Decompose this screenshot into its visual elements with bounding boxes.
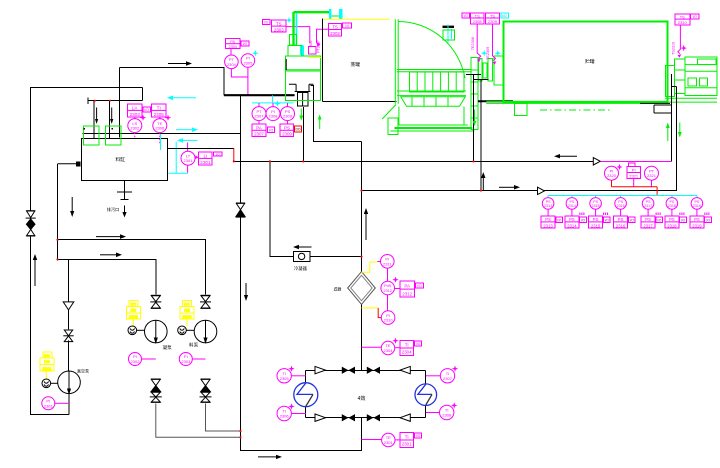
svg-text:LI: LI [203,153,207,158]
svg-text:2307: 2307 [255,114,265,119]
svg-text:TS: TS [680,15,685,20]
svg-text:2312: 2312 [402,291,412,296]
svg-text:HS: HS [184,308,190,313]
svg-text:TS: TS [490,13,495,18]
svg-text:2313: 2313 [544,204,552,208]
svg-text:2321: 2321 [647,173,657,178]
svg-text:真空泵: 真空泵 [77,367,89,373]
svg-text:2311: 2311 [383,261,392,266]
svg-text:2303: 2303 [130,112,141,117]
svg-text:I/O: I/O [630,218,635,222]
svg-text:2319: 2319 [693,204,701,208]
svg-text:TI: TI [405,343,409,348]
svg-text:I/O: I/O [557,218,562,222]
svg-text:PA: PA [230,40,235,44]
svg-text:2310: 2310 [678,20,688,25]
svg-text:2316: 2316 [617,204,625,208]
svg-text:I/O: I/O [416,342,421,346]
svg-text:蒸罐: 蒸罐 [351,61,361,68]
svg-text:2309: 2309 [488,19,498,24]
svg-text:2310: 2310 [384,318,394,323]
svg-text:2309: 2309 [283,114,293,119]
svg-text:2318: 2318 [667,223,677,228]
svg-text:2314: 2314 [567,223,577,228]
svg-text:I/O: I/O [693,15,698,19]
svg-text:2306: 2306 [155,126,165,131]
svg-text:PS: PS [569,217,575,222]
svg-text:DO: DO [44,354,50,358]
svg-text:2301: 2301 [402,442,412,447]
svg-text:I/O: I/O [345,24,350,28]
svg-text:2308: 2308 [442,413,452,418]
svg-text:I/O: I/O [417,284,422,288]
svg-text:2303: 2303 [274,27,284,32]
svg-text:TS: TS [332,25,338,30]
svg-text:2301: 2301 [200,160,211,165]
svg-text:2316: 2316 [616,223,626,228]
svg-text:4效: 4效 [358,394,367,402]
svg-text:2301: 2301 [44,403,54,408]
svg-text:2304: 2304 [402,350,412,355]
svg-text:2302: 2302 [130,126,140,131]
svg-text:2315: 2315 [591,223,601,228]
svg-text:2301: 2301 [384,440,394,445]
svg-text:2304: 2304 [228,45,236,49]
svg-text:料缸: 料缸 [116,156,126,163]
svg-text:2305: 2305 [154,112,165,117]
svg-text:I/O: I/O [581,218,586,222]
svg-text:TE2308: TE2308 [471,37,475,50]
svg-text:HS: HS [131,308,137,313]
svg-text:I/O: I/O [502,14,507,18]
svg-text:I/O: I/O [681,218,686,222]
svg-text:PS: PS [593,217,599,222]
svg-text:PS: PS [618,217,624,222]
svg-text:2321: 2321 [629,174,639,179]
svg-text:TS: TS [276,21,282,26]
svg-text:2301: 2301 [43,366,53,371]
svg-text:2303: 2303 [183,314,193,319]
svg-text:TE2309: TE2309 [486,47,490,60]
svg-text:2309: 2309 [282,132,292,137]
svg-text:2306: 2306 [280,414,290,419]
svg-text:2305: 2305 [243,61,253,66]
svg-text:2302: 2302 [129,314,139,319]
svg-text:排污口: 排污口 [107,206,120,213]
svg-text:2308: 2308 [269,114,279,119]
svg-text:2317: 2317 [643,223,653,228]
svg-text:2319: 2319 [692,223,702,228]
svg-text:I/O: I/O [416,434,421,438]
svg-text:I/O: I/O [264,21,269,25]
svg-text:2313: 2313 [543,223,553,228]
svg-text:I/O: I/O [243,42,248,46]
svg-text:2317: 2317 [644,204,652,208]
svg-text:2314: 2314 [568,204,576,208]
svg-text:I/O: I/O [269,128,274,132]
svg-text:PS: PS [694,217,700,222]
svg-text:贮罐: 贮罐 [585,58,595,65]
svg-text:2302: 2302 [131,359,141,364]
svg-text:I/O: I/O [216,152,221,156]
svg-text:PI: PI [632,168,636,173]
svg-text:2304: 2304 [227,62,237,67]
svg-text:PS: PS [645,217,651,222]
svg-text:凝泵: 凝泵 [163,344,173,351]
svg-text:PA: PA [256,125,262,130]
svg-text:DO: DO [184,302,190,306]
svg-text:TI: TI [405,435,409,440]
svg-text:TS: TS [475,13,480,18]
svg-text:2307: 2307 [443,376,453,381]
svg-text:2307: 2307 [254,132,264,137]
svg-text:PS: PS [545,217,551,222]
svg-text:料泵: 料泵 [189,342,199,349]
svg-text:PT2307: PT2307 [317,40,321,53]
svg-text:I/O: I/O [464,14,469,18]
svg-text:TS2310: TS2310 [672,42,676,55]
svg-text:PdS: PdS [384,284,392,288]
svg-text:2302: 2302 [330,31,340,36]
svg-text:PS: PS [669,217,675,222]
svg-text:2315: 2315 [592,204,600,208]
svg-text:I/O: I/O [706,218,711,222]
svg-text:PS: PS [284,125,290,130]
svg-text:2320: 2320 [607,173,617,178]
svg-text:I/O: I/O [657,218,662,222]
svg-text:2304: 2304 [384,348,394,353]
svg-text:2318: 2318 [668,204,676,208]
svg-text:2308: 2308 [473,19,483,24]
svg-text:冷凝器: 冷凝器 [294,265,308,272]
svg-text:2305: 2305 [280,376,290,381]
svg-text:HS: HS [44,359,50,364]
svg-text:DO: DO [295,128,300,132]
svg-text:LA: LA [132,105,139,110]
svg-text:2312: 2312 [383,289,391,293]
svg-text:滤器: 滤器 [334,286,342,291]
svg-text:I/O: I/O [144,108,149,112]
svg-text:2303: 2303 [181,359,191,364]
svg-text:I/O: I/O [605,218,610,222]
svg-text:TI: TI [157,105,161,110]
svg-text:PA: PA [404,284,410,289]
svg-text:2301: 2301 [184,158,194,163]
svg-text:DO: DO [131,302,137,306]
